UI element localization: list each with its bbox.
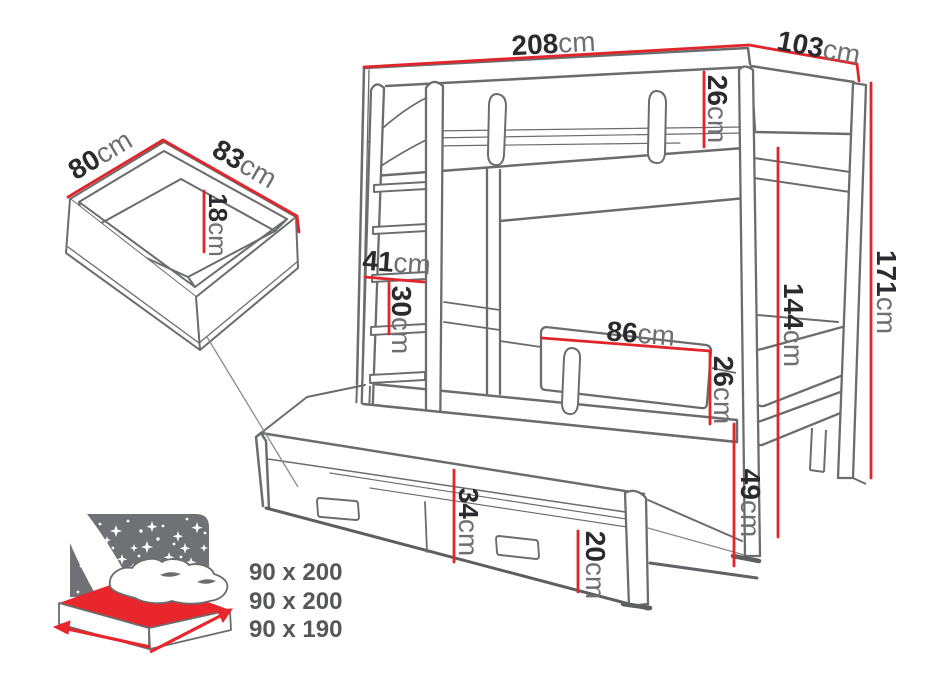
svg-text:26cm: 26cm: [708, 356, 739, 424]
svg-text:20cm: 20cm: [580, 531, 611, 599]
svg-text:144cm: 144cm: [778, 283, 809, 367]
svg-text:90 x 190: 90 x 190: [249, 616, 342, 643]
svg-text:34cm: 34cm: [453, 488, 484, 556]
svg-text:49cm: 49cm: [735, 469, 766, 537]
svg-text:41cm: 41cm: [361, 245, 431, 281]
svg-text:26cm: 26cm: [702, 75, 733, 143]
svg-text:86cm: 86cm: [605, 315, 676, 351]
svg-text:171cm: 171cm: [871, 250, 902, 334]
svg-text:208cm: 208cm: [511, 26, 597, 61]
svg-text:90 x 200: 90 x 200: [249, 588, 342, 615]
svg-text:90 x 200: 90 x 200: [249, 559, 342, 586]
svg-text:30cm: 30cm: [386, 286, 417, 354]
svg-text:18cm: 18cm: [203, 193, 233, 257]
